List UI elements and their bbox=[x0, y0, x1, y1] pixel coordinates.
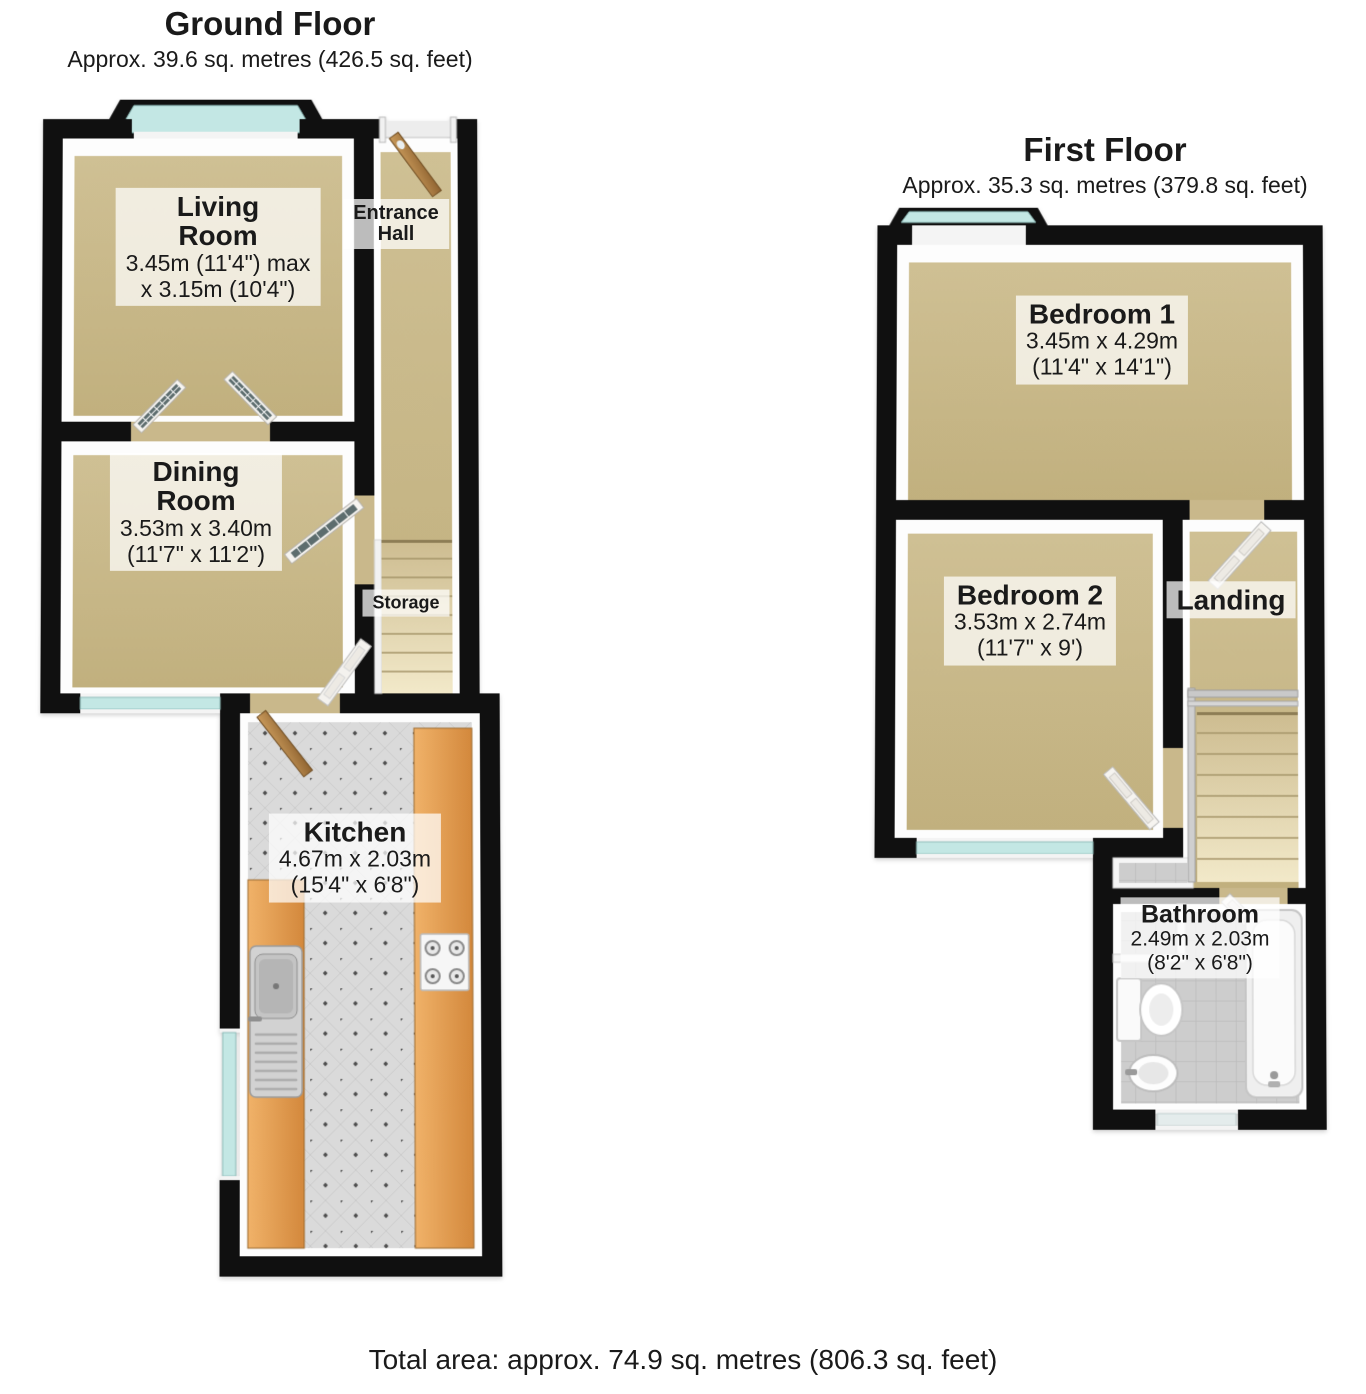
kitchen-dims-2: (15'4" x 6'8") bbox=[279, 873, 431, 899]
bathroom-dims-2: (8'2" x 6'8") bbox=[1131, 951, 1270, 975]
bedroom2-dims-1: 3.53m x 2.74m bbox=[954, 610, 1106, 636]
kitchen-window bbox=[220, 1029, 240, 1181]
bathroom-label: Bathroom 2.49m x 2.03m (8'2" x 6'8") bbox=[1121, 897, 1280, 978]
dining-room-dims-1: 3.53m x 3.40m bbox=[120, 516, 272, 542]
bedroom1-door-opening bbox=[1190, 500, 1265, 520]
entrance-hall-name: Entrance Hall bbox=[353, 203, 439, 245]
dining-room-label: Dining Room 3.53m x 3.40m (11'7" x 11'2"… bbox=[110, 453, 282, 571]
first-floor-subtitle: Approx. 35.3 sq. metres (379.8 sq. feet) bbox=[855, 172, 1355, 199]
dining-room-name: Dining Room bbox=[120, 457, 272, 516]
bedroom2-door-opening bbox=[1163, 748, 1183, 828]
bedroom1-bay-window bbox=[889, 208, 1047, 245]
entrance-hall-label: Entrance Hall bbox=[343, 199, 449, 249]
total-area-text: Total area: approx. 74.9 sq. metres (806… bbox=[0, 1344, 1366, 1376]
bedroom2-dims-2: (11'7" x 9') bbox=[954, 636, 1106, 662]
kitchen-name: Kitchen bbox=[279, 818, 431, 847]
bedroom1-name: Bedroom 1 bbox=[1026, 300, 1178, 329]
kitchen-label: Kitchen 4.67m x 2.03m (15'4" x 6'8") bbox=[269, 814, 441, 903]
first-floor-title: First Floor bbox=[855, 132, 1355, 168]
kitchen-sink bbox=[248, 946, 302, 1097]
storage-label: Storage bbox=[362, 590, 449, 617]
bedroom1-dims-2: (11'4" x 14'1") bbox=[1026, 355, 1178, 381]
storage-name: Storage bbox=[372, 594, 439, 613]
bedroom2-name: Bedroom 2 bbox=[954, 581, 1106, 610]
ground-floor-header: Ground Floor Approx. 39.6 sq. metres (42… bbox=[10, 6, 530, 73]
bathroom-name: Bathroom bbox=[1131, 901, 1270, 927]
ground-floor-title: Ground Floor bbox=[10, 6, 530, 42]
first-floor-header: First Floor Approx. 35.3 sq. metres (379… bbox=[855, 132, 1355, 199]
living-room-name: Living Room bbox=[126, 192, 311, 251]
bedroom1-label: Bedroom 1 3.45m x 4.29m (11'4" x 14'1") bbox=[1016, 296, 1188, 385]
staircase bbox=[374, 540, 452, 694]
ground-floor-subtitle: Approx. 39.6 sq. metres (426.5 sq. feet) bbox=[10, 46, 530, 73]
floorplan-canvas: { "ground_floor": { "title": "Ground Flo… bbox=[0, 0, 1366, 1394]
dining-room-dims-2: (11'7" x 11'2") bbox=[120, 541, 272, 567]
kitchen-dims-1: 4.67m x 2.03m bbox=[279, 847, 431, 873]
landing-label: Landing bbox=[1167, 581, 1296, 618]
kitchen-hob bbox=[420, 934, 468, 990]
bedroom1-dims-1: 3.45m x 4.29m bbox=[1026, 329, 1178, 355]
airing-cupboard bbox=[1113, 858, 1193, 888]
living-room-dims-2: x 3.15m (10'4") bbox=[126, 276, 311, 302]
living-room-dims-1: 3.45m (11'4") max bbox=[126, 251, 311, 277]
toilet bbox=[1117, 978, 1182, 1040]
bathroom-window bbox=[1155, 1110, 1238, 1130]
bedroom2-window bbox=[917, 838, 1093, 858]
bathroom-dims-1: 2.49m x 2.03m bbox=[1131, 928, 1270, 952]
landing-staircase bbox=[1188, 688, 1299, 882]
dining-room-window bbox=[80, 693, 220, 713]
landing-name: Landing bbox=[1177, 585, 1286, 614]
living-room-label: Living Room 3.45m (11'4") max x 3.15m (1… bbox=[116, 188, 321, 306]
bedroom2-label: Bedroom 2 3.53m x 2.74m (11'7" x 9') bbox=[944, 577, 1116, 666]
living-dining-opening bbox=[131, 422, 270, 442]
living-room-bay-window bbox=[98, 100, 333, 139]
